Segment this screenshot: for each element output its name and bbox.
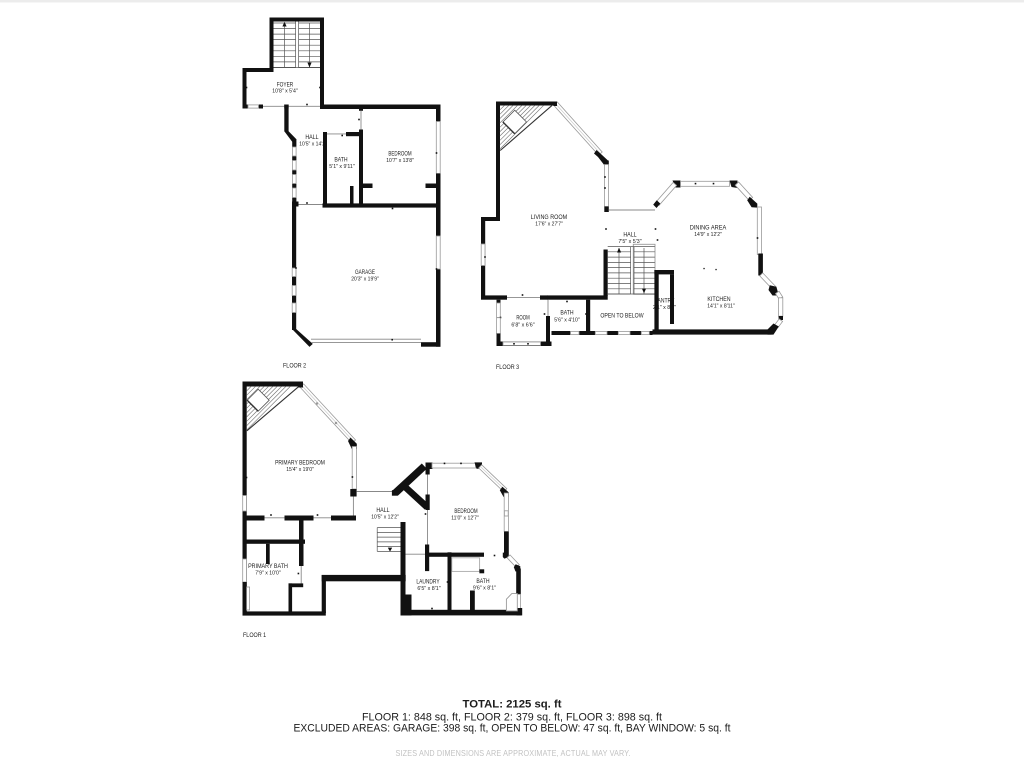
svg-text:LIVING ROOM: LIVING ROOM xyxy=(531,214,568,221)
svg-text:10'5" x 14'2": 10'5" x 14'2" xyxy=(299,142,327,148)
svg-text:10'7" x 13'8": 10'7" x 13'8" xyxy=(386,158,414,164)
svg-text:ROOM: ROOM xyxy=(516,315,529,322)
svg-text:DINING AREA: DINING AREA xyxy=(690,225,727,232)
svg-text:BATH: BATH xyxy=(560,310,574,317)
svg-text:LAUNDRY: LAUNDRY xyxy=(416,579,440,586)
svg-text:7'9" x 10'0": 7'9" x 10'0" xyxy=(255,571,280,577)
svg-text:GARAGE: GARAGE xyxy=(355,269,375,276)
svg-text:6'8" x 6'6": 6'8" x 6'6" xyxy=(511,323,534,329)
svg-text:BATH: BATH xyxy=(334,157,348,164)
svg-text:BEDROOM: BEDROOM xyxy=(388,151,411,158)
svg-text:17'6" x 27'7": 17'6" x 27'7" xyxy=(535,222,563,228)
svg-text:11'0" x 12'7": 11'0" x 12'7" xyxy=(451,516,479,522)
svg-text:SIZES AND DIMENSIONS ARE APPRO: SIZES AND DIMENSIONS ARE APPROXIMATE, AC… xyxy=(396,749,631,758)
svg-text:14'9" x 12'2": 14'9" x 12'2" xyxy=(694,232,722,238)
svg-text:BATH: BATH xyxy=(476,578,490,585)
svg-text:KITCHEN: KITCHEN xyxy=(707,296,731,303)
svg-text:FLOOR 2: FLOOR 2 xyxy=(283,363,306,370)
svg-text:OPEN TO BELOW: OPEN TO BELOW xyxy=(600,313,644,320)
svg-text:5'6" x 4'10": 5'6" x 4'10" xyxy=(554,318,579,324)
svg-text:PRIMARY BEDROOM: PRIMARY BEDROOM xyxy=(275,460,325,467)
svg-text:5'1" x 9'11": 5'1" x 9'11" xyxy=(329,164,354,170)
svg-text:FLOOR 1: FLOOR 1 xyxy=(243,632,266,639)
svg-text:15'4" x 19'0": 15'4" x 19'0" xyxy=(286,467,314,473)
svg-text:14'1" x 8'11": 14'1" x 8'11" xyxy=(707,304,735,310)
svg-text:HALL: HALL xyxy=(305,134,319,141)
svg-text:9'6" x 8'1": 9'6" x 8'1" xyxy=(473,586,496,592)
svg-text:HALL: HALL xyxy=(623,232,637,239)
svg-text:EXCLUDED AREAS: GARAGE: 398 sq: EXCLUDED AREAS: GARAGE: 398 sq. ft, OPEN… xyxy=(294,723,731,735)
svg-text:PRIMARY BATH: PRIMARY BATH xyxy=(248,563,288,570)
svg-text:10'5" x 12'2": 10'5" x 12'2" xyxy=(371,515,399,521)
svg-text:HALL: HALL xyxy=(376,507,390,514)
svg-text:BEDROOM: BEDROOM xyxy=(454,508,477,515)
svg-text:20'3" x 19'9": 20'3" x 19'9" xyxy=(351,277,379,283)
svg-text:TOTAL: 2125 sq. ft: TOTAL: 2125 sq. ft xyxy=(463,699,562,711)
svg-text:10'8" x 5'4": 10'8" x 5'4" xyxy=(272,88,297,94)
svg-text:FLOOR 3: FLOOR 3 xyxy=(496,364,519,371)
svg-text:6'5" x 8'1": 6'5" x 8'1" xyxy=(417,586,440,592)
